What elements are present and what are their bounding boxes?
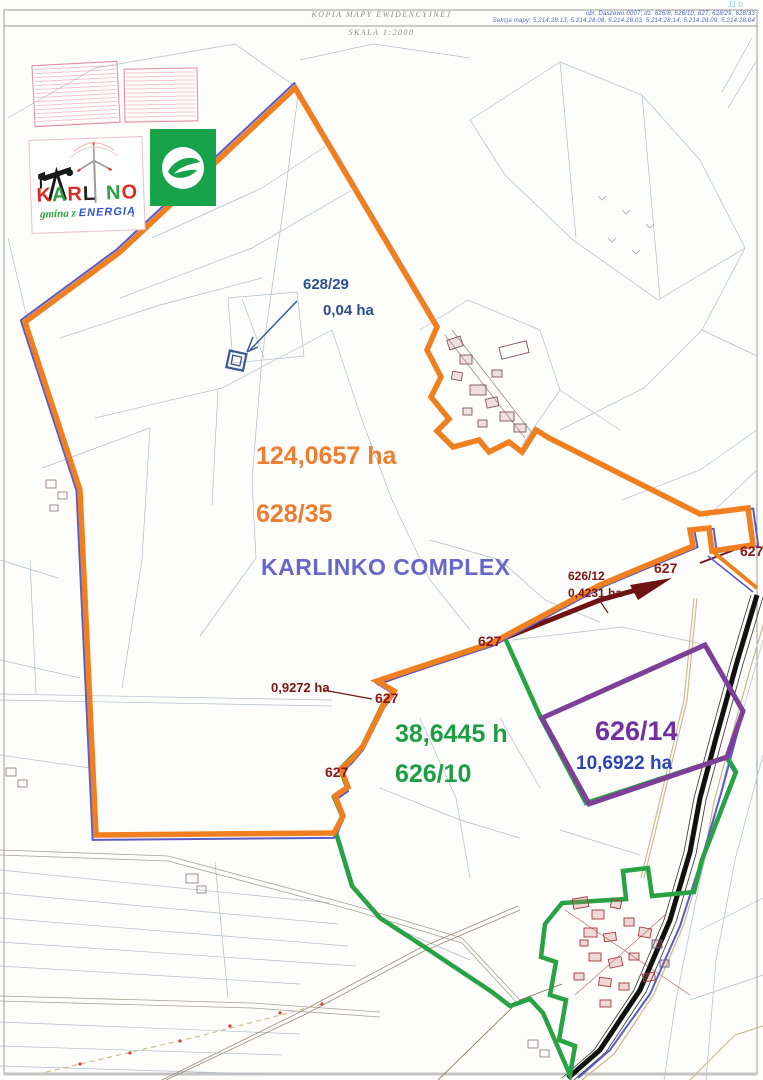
- register-info-line1: obr. Daszewo 0007; dz. 626/8, 626/10, 62…: [586, 11, 755, 17]
- logo-letter: A: [52, 184, 68, 207]
- farm-buildings-north: [447, 336, 529, 432]
- register-info-line2: Sekcja mapy: 5.214.28.13, 5.214.28.08, 5…: [493, 18, 755, 24]
- logo-letter: L: [82, 183, 96, 205]
- label-626-12-id: 626/12: [568, 570, 605, 582]
- label-628-35-id: 628/35: [256, 502, 332, 527]
- corner-mark: 11 b: [728, 0, 743, 9]
- label-road-627-a: 627: [654, 561, 677, 575]
- green-logo-art: [150, 129, 216, 206]
- tagline-caps: ENERGIĄ: [79, 205, 137, 219]
- label-628-29-area: 0,04 ha: [323, 303, 374, 318]
- cadastral-map-sheet: KOPIA MAPY EWIDENCYJNEJ SKALA 1:2000 obr…: [0, 0, 763, 1080]
- label-road-627-d: 627: [375, 691, 398, 705]
- label-628-35-area: 124,0657 ha: [256, 444, 396, 469]
- sheet-scale: SKALA 1:2000: [0, 28, 763, 37]
- label-karlinko-complex: KARLINKO COMPLEX: [261, 556, 511, 579]
- logo-letter: N: [106, 182, 122, 205]
- official-stamp-right: [124, 67, 199, 122]
- forest-hatching: [598, 196, 654, 254]
- label-626-12-area: 0,4231 ha: [568, 587, 622, 599]
- official-stamp-left: [31, 61, 120, 127]
- logo-letter: O: [121, 181, 138, 204]
- label-road-627-c: 627: [478, 634, 501, 648]
- label-626-14-id: 626/14: [595, 718, 678, 745]
- label-627-sliver-area: 0,9272 ha: [271, 681, 330, 694]
- logo-letter: K: [36, 184, 52, 207]
- karlino-logo: KARLNO gmina z ENERGIĄ: [28, 136, 145, 234]
- powerline-markers: [78, 1002, 323, 1065]
- logo-letter: R: [67, 183, 83, 206]
- label-628-29-id: 628/29: [303, 277, 349, 292]
- label-road-627-e: 627: [325, 765, 348, 779]
- label-626-10-id: 626/10: [395, 762, 471, 787]
- tagline-script: gmina z: [40, 207, 76, 220]
- label-626-14-area: 10,6922 ha: [576, 754, 672, 773]
- label-626-10-area: 38,6445 h: [395, 722, 508, 747]
- railway-line: [562, 595, 763, 1080]
- karlino-wordmark: KARLNO: [35, 181, 140, 208]
- label-road-627-b: 627: [740, 544, 763, 558]
